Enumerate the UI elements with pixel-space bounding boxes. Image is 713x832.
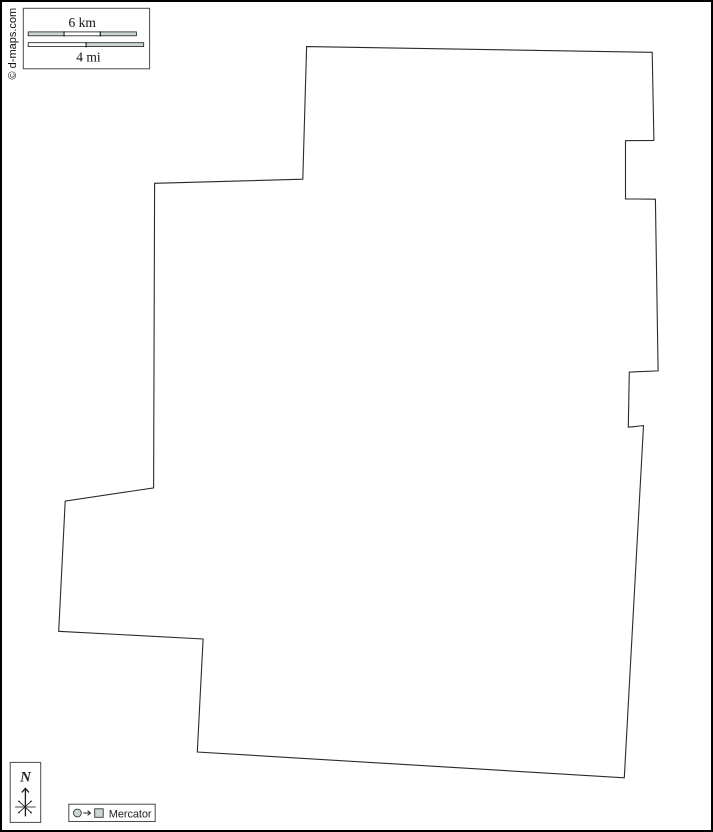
svg-text:4 mi: 4 mi: [76, 49, 101, 64]
svg-text:© d-maps.com: © d-maps.com: [7, 8, 19, 80]
svg-text:N: N: [19, 769, 32, 785]
svg-text:6 km: 6 km: [69, 15, 97, 30]
svg-text:Mercator: Mercator: [109, 808, 152, 820]
